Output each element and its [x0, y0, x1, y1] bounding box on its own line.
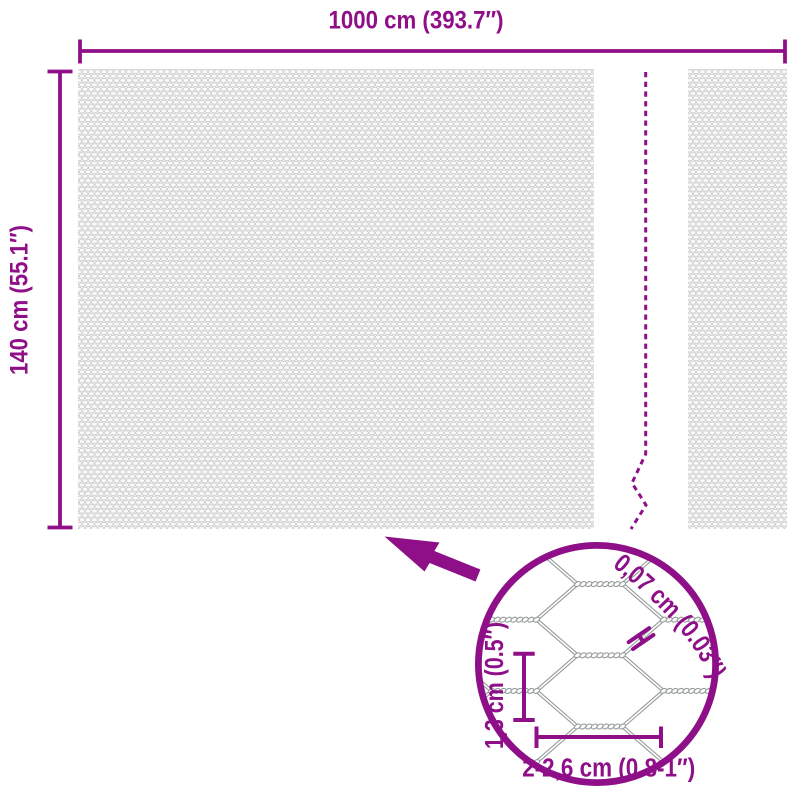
- svg-text:140 cm (55.1″): 140 cm (55.1″): [6, 225, 34, 375]
- svg-text:2-2,6 cm (0.8-1″): 2-2,6 cm (0.8-1″): [522, 755, 695, 783]
- svg-text:1,3 cm (0.5″): 1,3 cm (0.5″): [479, 622, 509, 749]
- svg-text:1000 cm (393.7″): 1000 cm (393.7″): [329, 7, 504, 35]
